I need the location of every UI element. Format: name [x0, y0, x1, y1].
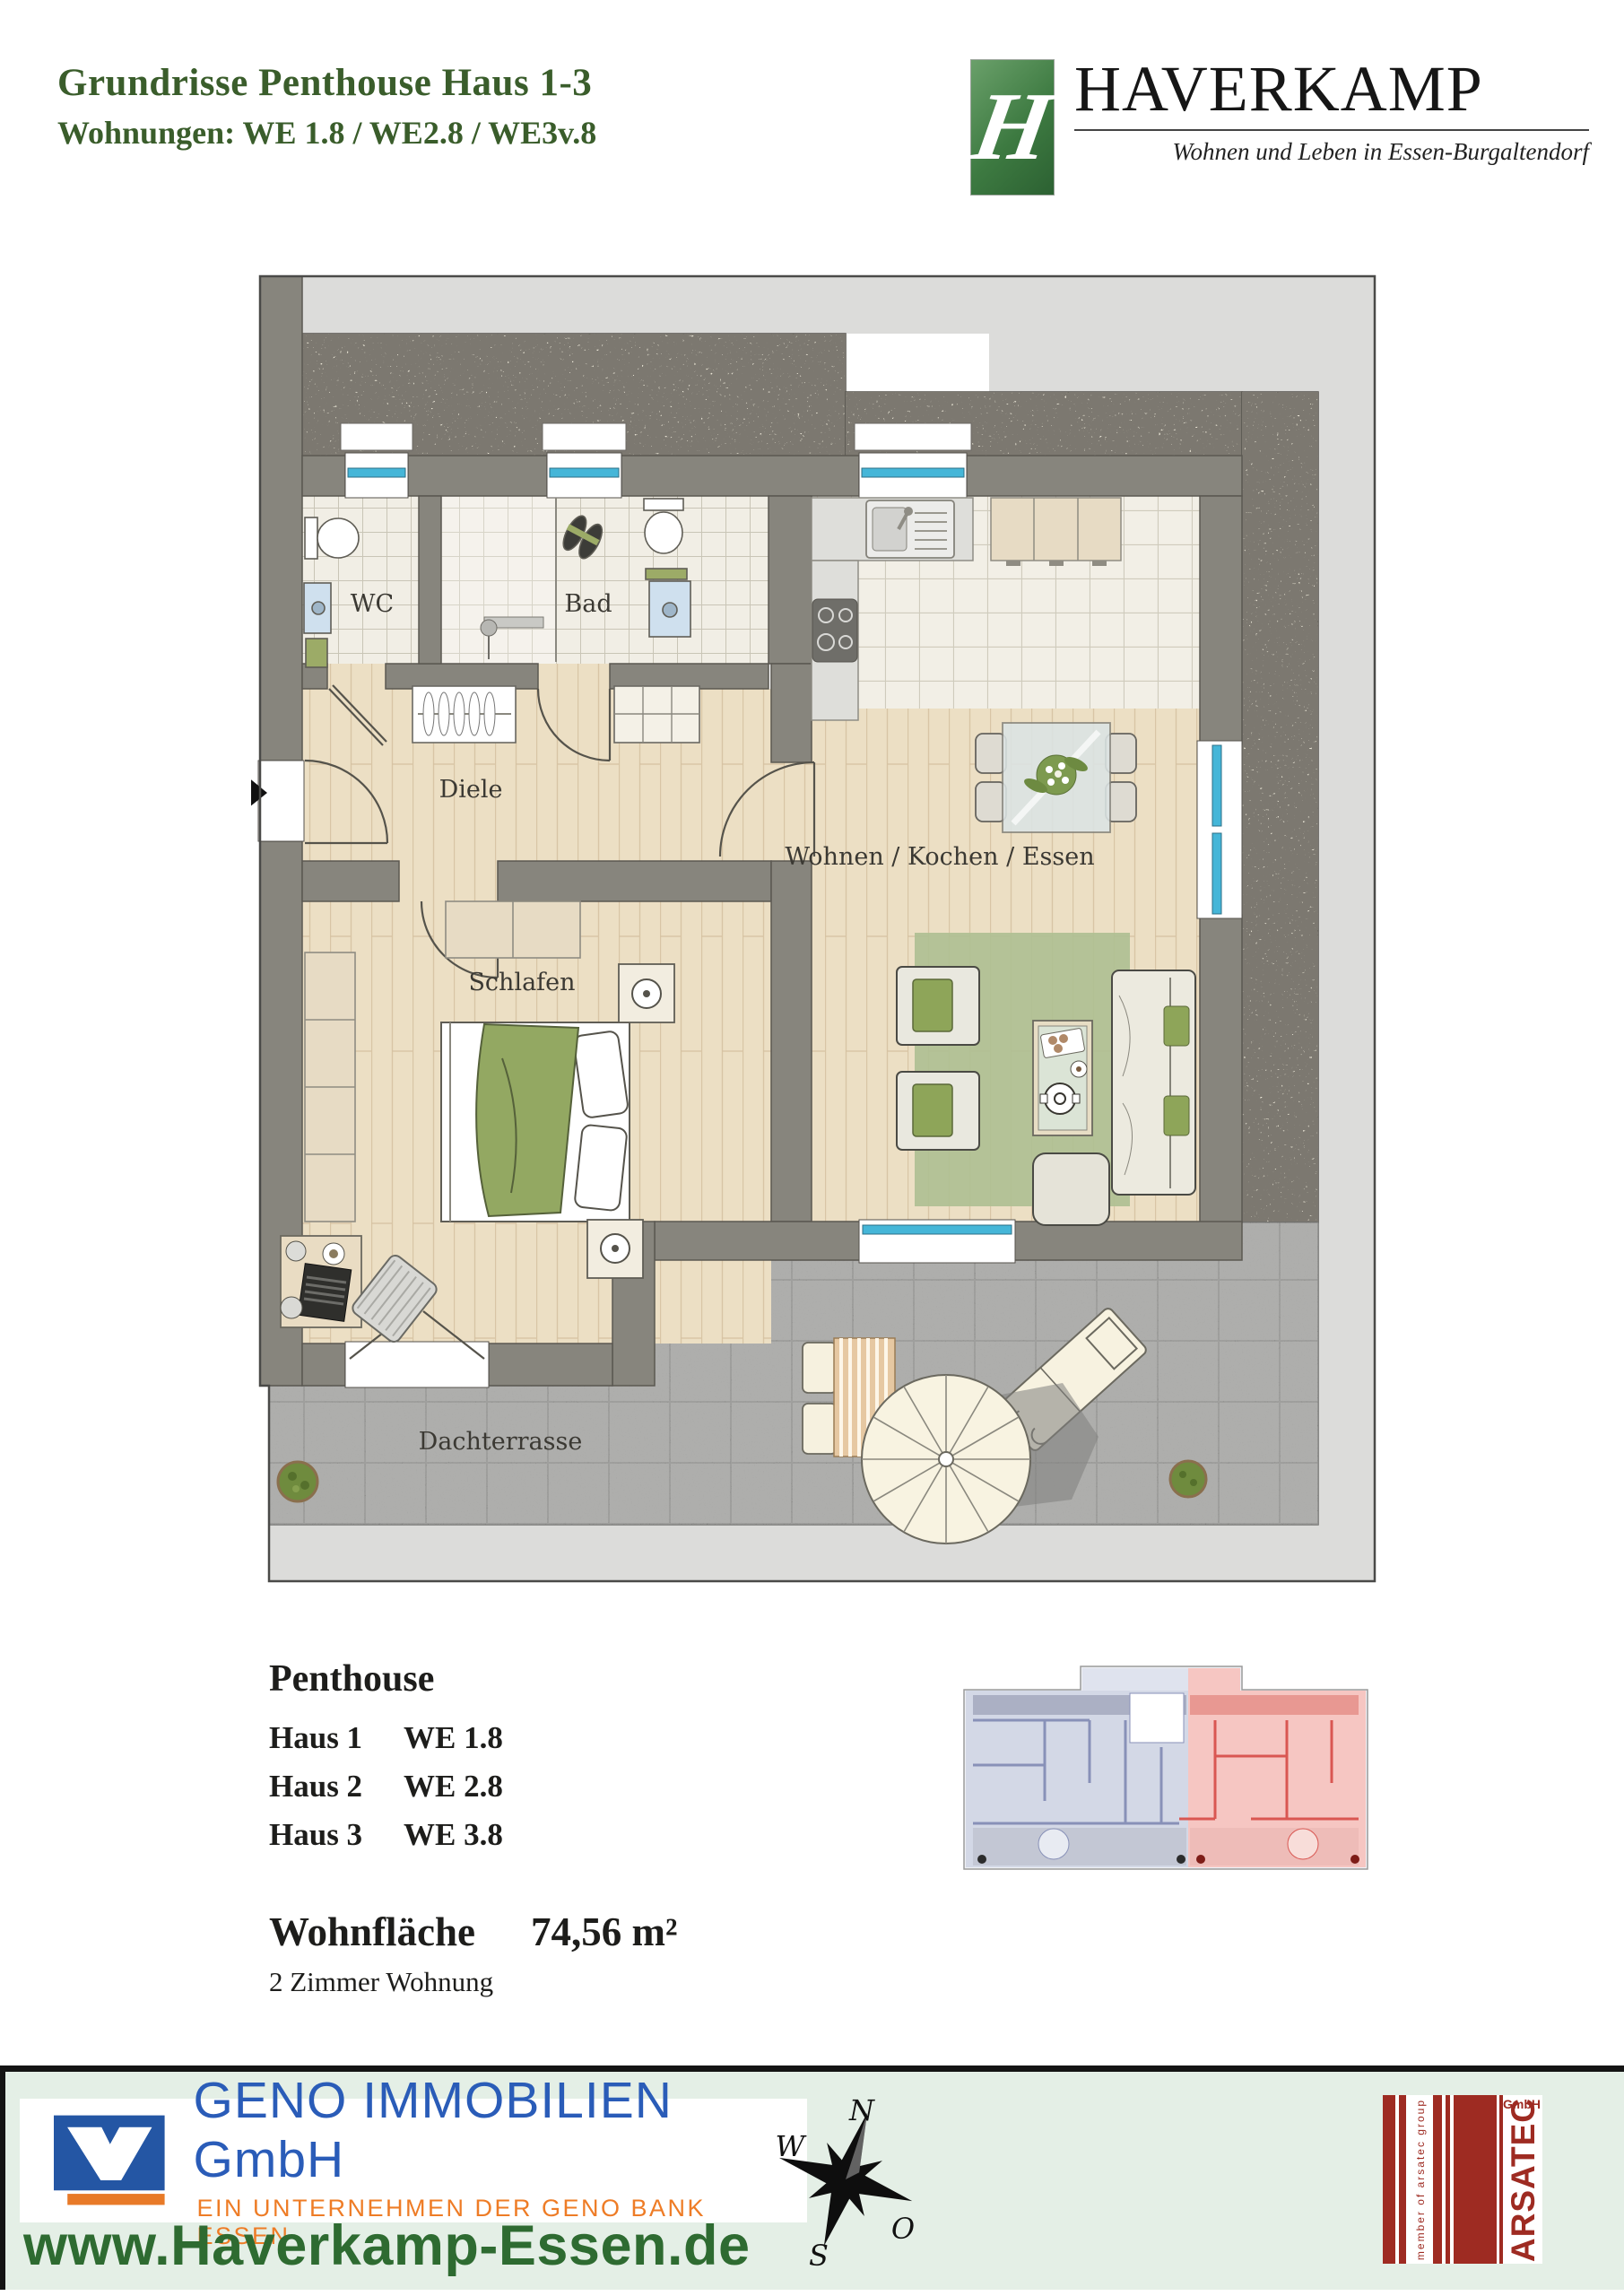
- apartment-type: 2 Zimmer Wohnung: [269, 1966, 493, 1998]
- compass-rose-icon: N W O S: [767, 2090, 937, 2274]
- label-schlafen: Schlafen: [468, 969, 575, 996]
- overview-miniplan: [946, 1657, 1387, 1880]
- haus-3: Haus 3: [269, 1817, 404, 1853]
- kitchen-sink-icon: [866, 500, 954, 558]
- we-2: WE 2.8: [404, 1769, 503, 1805]
- haverkamp-logo: H HAVERKAMP Wohnen und Leben in Essen-Bu…: [970, 56, 1589, 204]
- penthouse-heading: Penthouse: [269, 1657, 434, 1700]
- geno-logo: GENO IMMOBILIEN GmbH EIN UNTERNEHMEN DER…: [20, 2099, 807, 2222]
- haus-1: Haus 1: [269, 1720, 404, 1756]
- area-label: Wohnfläche: [269, 1909, 475, 1955]
- unit-row-3: Haus 3 WE 3.8: [269, 1817, 646, 1853]
- brochure-page: { "header": { "title_line1": "Grundrisse…: [0, 0, 1624, 2296]
- brand-name: HAVERKAMP: [1074, 56, 1589, 131]
- page-title: Grundrisse Penthouse Haus 1-3 Wohnungen:…: [57, 61, 739, 152]
- haus-2: Haus 2: [269, 1769, 404, 1805]
- compass-n: N: [848, 2093, 875, 2127]
- label-diele: Diele: [439, 776, 503, 804]
- arsatec-name-block: GmbH ARSATEC: [1503, 2095, 1542, 2264]
- arsatec-name: ARSATEC: [1505, 2098, 1542, 2262]
- we-3: WE 3.8: [404, 1817, 503, 1853]
- geno-name: GENO IMMOBILIEN GmbH: [194, 2071, 808, 2189]
- website-url: www.Haverkamp-Essen.de: [23, 2213, 751, 2278]
- we-1: WE 1.8: [404, 1720, 503, 1756]
- label-wc: WC: [351, 590, 394, 618]
- title-line2: Wohnungen: WE 1.8 / WE2.8 / WE3v.8: [57, 114, 739, 152]
- compass-s: S: [809, 2239, 829, 2273]
- living-area: [897, 933, 1195, 1225]
- volksbank-v-icon: [54, 2113, 167, 2208]
- compass-w: W: [776, 2129, 808, 2163]
- coffee-table-icon: [1033, 1021, 1092, 1135]
- area-value: 74,56 m²: [531, 1909, 677, 1955]
- arsatec-logo: member of arsatec group GmbH ARSATEC: [1383, 2095, 1542, 2264]
- label-dachterrasse: Dachterrasse: [419, 1428, 583, 1456]
- haverkamp-monogram: H: [966, 79, 1058, 176]
- label-bad: Bad: [564, 590, 612, 618]
- unit-row-2: Haus 2 WE 2.8: [269, 1769, 646, 1805]
- floorplan: WC Bad Diele Schlafen Wohnen / Kochen / …: [251, 265, 1385, 1592]
- label-wohnen: Wohnen / Kochen / Essen: [785, 843, 1094, 871]
- area-row: Wohnfläche 74,56 m²: [269, 1909, 678, 1955]
- unit-row-1: Haus 1 WE 1.8: [269, 1720, 646, 1756]
- title-line1: Grundrisse Penthouse Haus 1-3: [57, 61, 739, 105]
- haverkamp-logo-icon: H: [970, 59, 1055, 196]
- stove-icon: [812, 599, 857, 662]
- bed-icon: [441, 1022, 630, 1222]
- arsatec-member-text: member of arsatec group: [1410, 2095, 1431, 2264]
- compass-o: O: [891, 2212, 915, 2246]
- kitchen-cabinets: [991, 498, 1121, 566]
- brand-tagline: Wohnen und Leben in Essen-Burgaltendorf: [1074, 138, 1589, 166]
